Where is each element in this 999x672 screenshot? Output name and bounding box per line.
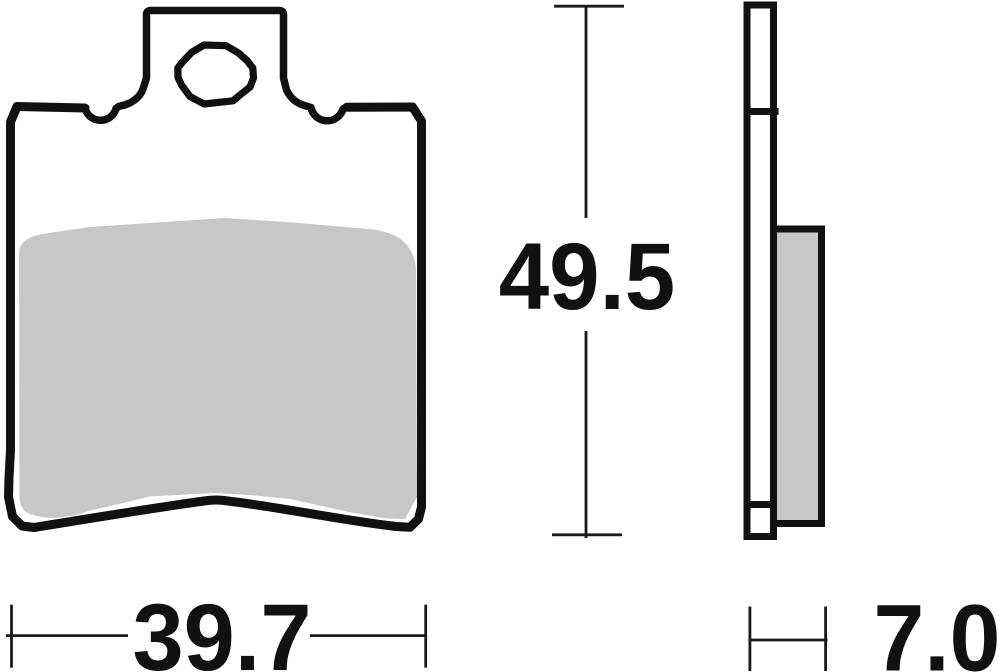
svg-text:49.5: 49.5	[499, 224, 676, 330]
svg-text:39.7: 39.7	[133, 585, 312, 672]
svg-text:7.0: 7.0	[874, 586, 999, 672]
